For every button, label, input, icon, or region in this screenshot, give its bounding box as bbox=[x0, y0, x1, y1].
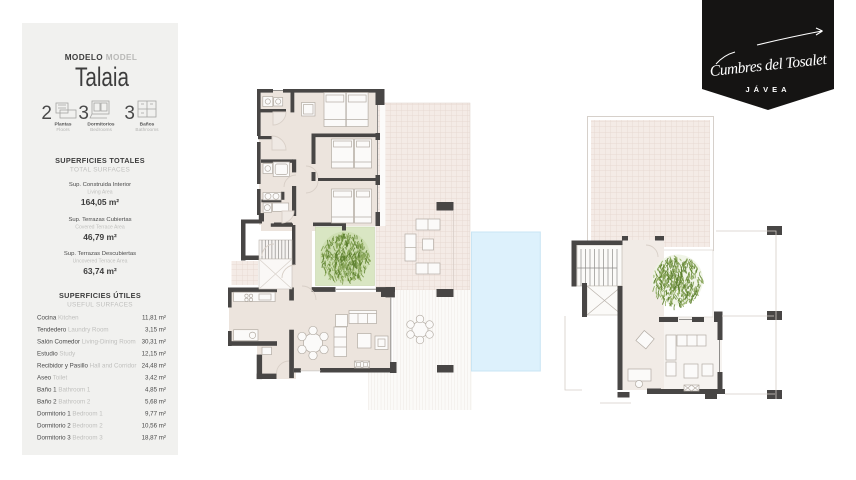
svg-text:Recibidor y Pasillo Hall and C: Recibidor y Pasillo Hall and Corridor bbox=[37, 363, 136, 370]
svg-text:Dormitorio 2 Bedroom 2: Dormitorio 2 Bedroom 2 bbox=[37, 423, 103, 430]
svg-text:4,85 m²: 4,85 m² bbox=[145, 387, 166, 394]
svg-text:Sup. Terrazas Cubiertas: Sup. Terrazas Cubiertas bbox=[68, 217, 131, 223]
svg-text:Plantas: Plantas bbox=[54, 122, 71, 128]
svg-text:30,31 m²: 30,31 m² bbox=[142, 339, 166, 346]
svg-text:2: 2 bbox=[41, 103, 52, 124]
svg-text:Cocina Kitchen: Cocina Kitchen bbox=[37, 315, 79, 322]
svg-text:JÁVEA: JÁVEA bbox=[745, 85, 790, 94]
svg-text:Bathrooms: Bathrooms bbox=[135, 127, 159, 133]
svg-text:63,74 m²: 63,74 m² bbox=[83, 266, 117, 276]
svg-text:3,42 m²: 3,42 m² bbox=[145, 375, 166, 382]
svg-text:Sup. Construida Interior: Sup. Construida Interior bbox=[69, 182, 131, 188]
svg-text:Baño 2 Bathroom 2: Baño 2 Bathroom 2 bbox=[37, 399, 91, 406]
svg-text:Baños: Baños bbox=[140, 122, 155, 128]
svg-text:11,81 m²: 11,81 m² bbox=[142, 315, 166, 322]
svg-text:Dormitorio 1 Bedroom 1: Dormitorio 1 Bedroom 1 bbox=[37, 411, 103, 418]
svg-text:46,79 m²: 46,79 m² bbox=[83, 232, 117, 242]
svg-text:Dormitorios: Dormitorios bbox=[87, 122, 115, 128]
svg-text:Covered Terrace Area: Covered Terrace Area bbox=[75, 225, 125, 231]
svg-text:Baño 1 Bathroom 1: Baño 1 Bathroom 1 bbox=[37, 387, 91, 394]
svg-text:Aseo Toilet: Aseo Toilet bbox=[37, 375, 67, 382]
svg-text:3: 3 bbox=[124, 103, 135, 124]
svg-text:USEFUL SURFACES: USEFUL SURFACES bbox=[67, 302, 133, 309]
svg-text:Tendedero Laundry Room: Tendedero Laundry Room bbox=[37, 327, 109, 334]
svg-text:5,68 m²: 5,68 m² bbox=[145, 399, 166, 406]
svg-text:Talaia: Talaia bbox=[75, 63, 130, 93]
svg-text:Floors: Floors bbox=[56, 127, 70, 133]
svg-text:MODELO MODEL: MODELO MODEL bbox=[65, 53, 138, 62]
svg-text:12,15 m²: 12,15 m² bbox=[142, 351, 166, 358]
svg-text:164,05 m²: 164,05 m² bbox=[81, 197, 119, 207]
svg-text:Uncovered Terrace Area: Uncovered Terrace Area bbox=[73, 259, 128, 265]
svg-text:10,56 m²: 10,56 m² bbox=[142, 423, 166, 430]
svg-text:9,77 m²: 9,77 m² bbox=[145, 411, 166, 418]
svg-text:Sup. Terrazas Descubiertas: Sup. Terrazas Descubiertas bbox=[64, 251, 136, 257]
svg-text:TOTAL SURFACES: TOTAL SURFACES bbox=[70, 167, 130, 174]
svg-text:Estudio Study: Estudio Study bbox=[37, 351, 76, 358]
svg-text:Salón Comedor Living-Dining Ro: Salón Comedor Living-Dining Room bbox=[37, 339, 136, 346]
svg-text:24,48 m²: 24,48 m² bbox=[142, 363, 166, 370]
svg-text:18,87 m²: 18,87 m² bbox=[142, 435, 166, 442]
svg-text:3: 3 bbox=[78, 103, 89, 124]
svg-text:Living Area: Living Area bbox=[87, 190, 112, 196]
svg-text:SUPERFICIES ÚTILES: SUPERFICIES ÚTILES bbox=[59, 291, 141, 300]
svg-text:Bedrooms: Bedrooms bbox=[90, 127, 112, 133]
svg-text:Dormitorio 3 Bedroom 3: Dormitorio 3 Bedroom 3 bbox=[37, 435, 103, 442]
svg-text:3,15 m²: 3,15 m² bbox=[145, 327, 166, 334]
svg-text:SUPERFICIES TOTALES: SUPERFICIES TOTALES bbox=[55, 156, 145, 165]
